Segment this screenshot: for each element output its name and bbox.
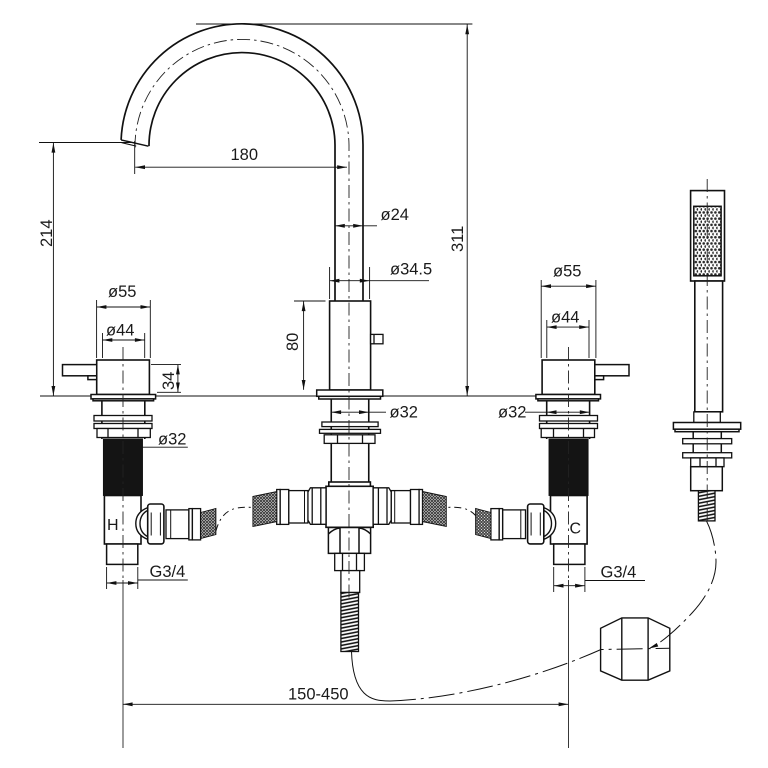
svg-text:ø32: ø32	[498, 404, 526, 422]
svg-text:G3/4: G3/4	[150, 563, 186, 581]
svg-text:34: 34	[160, 372, 178, 390]
svg-text:C: C	[570, 521, 582, 538]
svg-text:311: 311	[449, 226, 467, 252]
svg-text:ø24: ø24	[381, 206, 409, 224]
svg-text:ø55: ø55	[553, 263, 581, 281]
svg-text:G3/4: G3/4	[601, 564, 637, 582]
svg-text:214: 214	[38, 219, 56, 247]
svg-text:ø55: ø55	[108, 283, 136, 301]
svg-text:150-450: 150-450	[288, 686, 349, 704]
svg-text:180: 180	[231, 146, 259, 164]
svg-text:ø44: ø44	[106, 322, 134, 340]
svg-text:H: H	[107, 517, 119, 534]
svg-text:ø32: ø32	[158, 431, 186, 449]
svg-text:80: 80	[284, 333, 302, 351]
svg-text:ø32: ø32	[390, 404, 418, 422]
svg-text:ø34.5: ø34.5	[390, 261, 432, 279]
svg-text:ø44: ø44	[551, 309, 579, 327]
